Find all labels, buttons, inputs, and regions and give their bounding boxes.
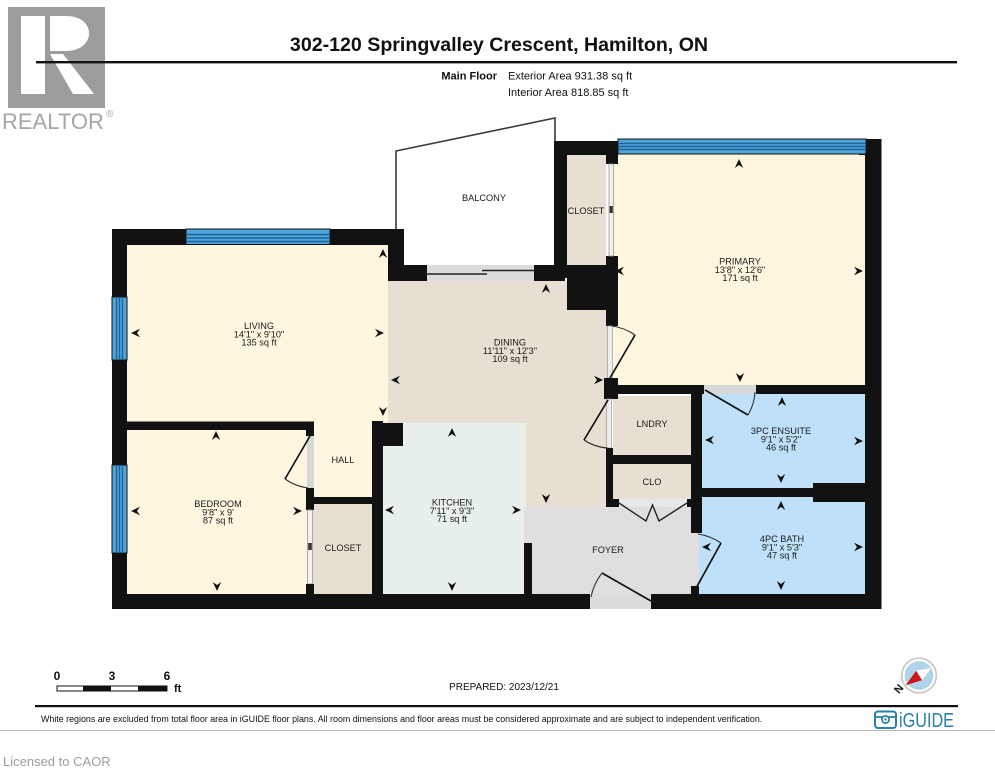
svg-text:®: ®	[106, 109, 114, 120]
svg-text:109 sq ft: 109 sq ft	[492, 354, 528, 364]
svg-text:47 sq ft: 47 sq ft	[767, 551, 798, 561]
svg-text:Main Floor: Main Floor	[441, 71, 497, 83]
svg-text:0: 0	[54, 669, 61, 683]
svg-text:White regions are excluded fro: White regions are excluded from total fl…	[41, 714, 762, 724]
svg-text:CLOSET: CLOSET	[568, 206, 605, 216]
svg-text:BALCONY: BALCONY	[462, 193, 506, 203]
svg-text:87 sq ft: 87 sq ft	[203, 516, 234, 526]
svg-text:CLOSET: CLOSET	[325, 543, 362, 553]
svg-text:Exterior Area 931.38 sq ft: Exterior Area 931.38 sq ft	[508, 71, 632, 83]
svg-text:3: 3	[109, 669, 116, 683]
svg-text:REALTOR: REALTOR	[2, 109, 104, 134]
svg-text:FOYER: FOYER	[592, 545, 624, 555]
svg-text:LNDRY: LNDRY	[637, 419, 668, 429]
svg-text:iGUIDE: iGUIDE	[899, 710, 954, 732]
svg-text:HALL: HALL	[332, 455, 355, 465]
svg-text:PREPARED: 2023/12/21: PREPARED: 2023/12/21	[449, 682, 559, 693]
svg-text:71 sq ft: 71 sq ft	[437, 514, 468, 524]
svg-text:CLO: CLO	[643, 477, 662, 487]
svg-text:46 sq ft: 46 sq ft	[766, 443, 797, 453]
svg-text:Interior Area 818.85 sq ft: Interior Area 818.85 sq ft	[508, 87, 628, 99]
svg-text:6: 6	[164, 669, 171, 683]
svg-text:135 sq ft: 135 sq ft	[241, 338, 277, 348]
svg-text:171 sq ft: 171 sq ft	[722, 273, 758, 283]
svg-text:ft: ft	[174, 683, 182, 695]
svg-text:302-120 Springvalley Crescent,: 302-120 Springvalley Crescent, Hamilton,…	[290, 34, 708, 56]
svg-text:Licensed to CAOR: Licensed to CAOR	[3, 754, 111, 768]
